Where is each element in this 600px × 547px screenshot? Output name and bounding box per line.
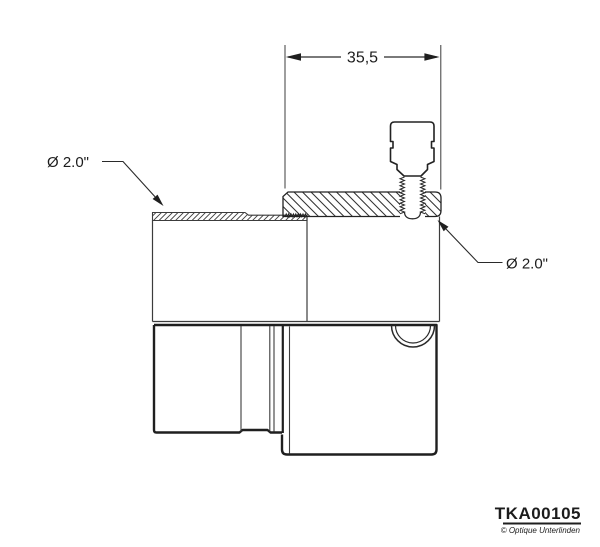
screw-hole-arc-outer [392, 326, 435, 347]
exterior-outline [154, 325, 437, 455]
screw-tip [405, 213, 421, 219]
screw-hole-arc-inner [396, 326, 431, 344]
screw-shank [405, 176, 421, 214]
exterior-view [154, 325, 437, 455]
dimension-value: 35,5 [347, 50, 378, 67]
screw-head [391, 122, 435, 176]
dimension-arrow-right [424, 53, 439, 61]
dimension-arrow-left [286, 53, 301, 61]
leader-line-left [102, 162, 155, 197]
callout-right-diameter: Ø 2.0" [438, 220, 549, 273]
title-block: TKA00105 © Optique Unterlinden [495, 504, 581, 535]
diameter-label-left: Ø 2.0" [47, 154, 89, 171]
leader-line-right [446, 229, 503, 263]
callout-left-diameter: Ø 2.0" [47, 154, 164, 206]
part-number: TKA00105 [495, 504, 581, 523]
drawing-page: 35,5 Ø 2.0" Ø 2.0" TKA00105 © Optique Un… [0, 0, 600, 547]
copyright-notice: © Optique Unterlinden [501, 526, 581, 535]
technical-drawing-canvas: 35,5 Ø 2.0" Ø 2.0" TKA00105 © Optique Un… [0, 0, 600, 547]
upper-body-outline [153, 216, 440, 322]
section-view [153, 192, 442, 322]
diameter-label-right: Ø 2.0" [506, 256, 548, 273]
